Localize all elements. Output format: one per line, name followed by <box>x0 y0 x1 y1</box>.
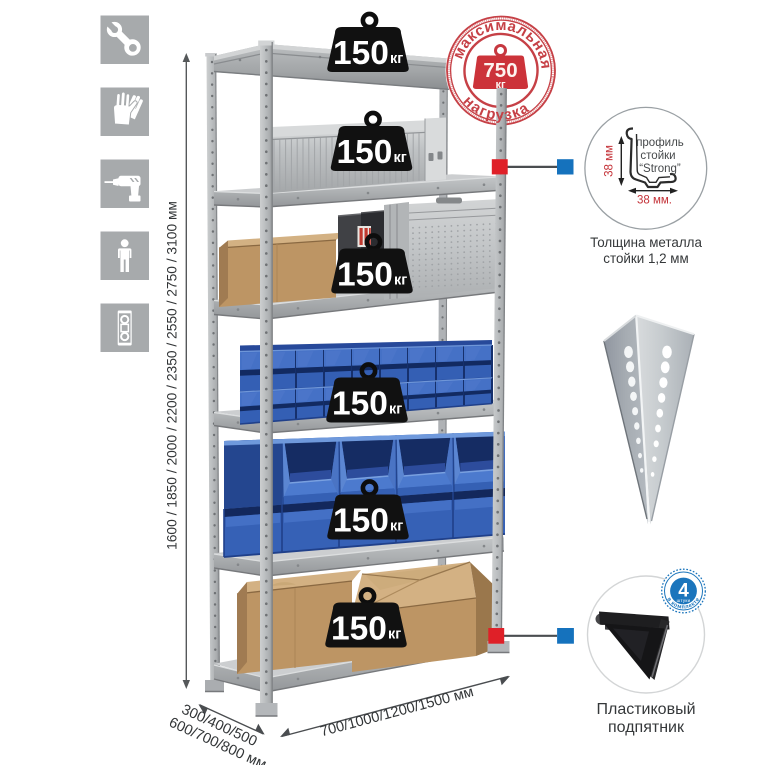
svg-text:подпятник: подпятник <box>608 719 685 736</box>
svg-text:“Strong”: “Strong” <box>639 163 681 175</box>
svg-text:Толщина металла: Толщина металла <box>590 235 702 250</box>
svg-text:38 мм: 38 мм <box>604 145 616 177</box>
svg-text:штуки: штуки <box>677 598 691 603</box>
svg-text:стойки 1,2 мм: стойки 1,2 мм <box>603 251 688 266</box>
svg-text:профиль: профиль <box>636 137 684 149</box>
svg-text:1600 / 1850 / 2000 / 2200 / 23: 1600 / 1850 / 2000 / 2200 / 2350 / 2550 … <box>165 201 180 550</box>
svg-text:Пластиковый: Пластиковый <box>596 701 695 718</box>
svg-text:38 мм.: 38 мм. <box>637 195 672 207</box>
svg-text:стойки: стойки <box>640 150 675 162</box>
